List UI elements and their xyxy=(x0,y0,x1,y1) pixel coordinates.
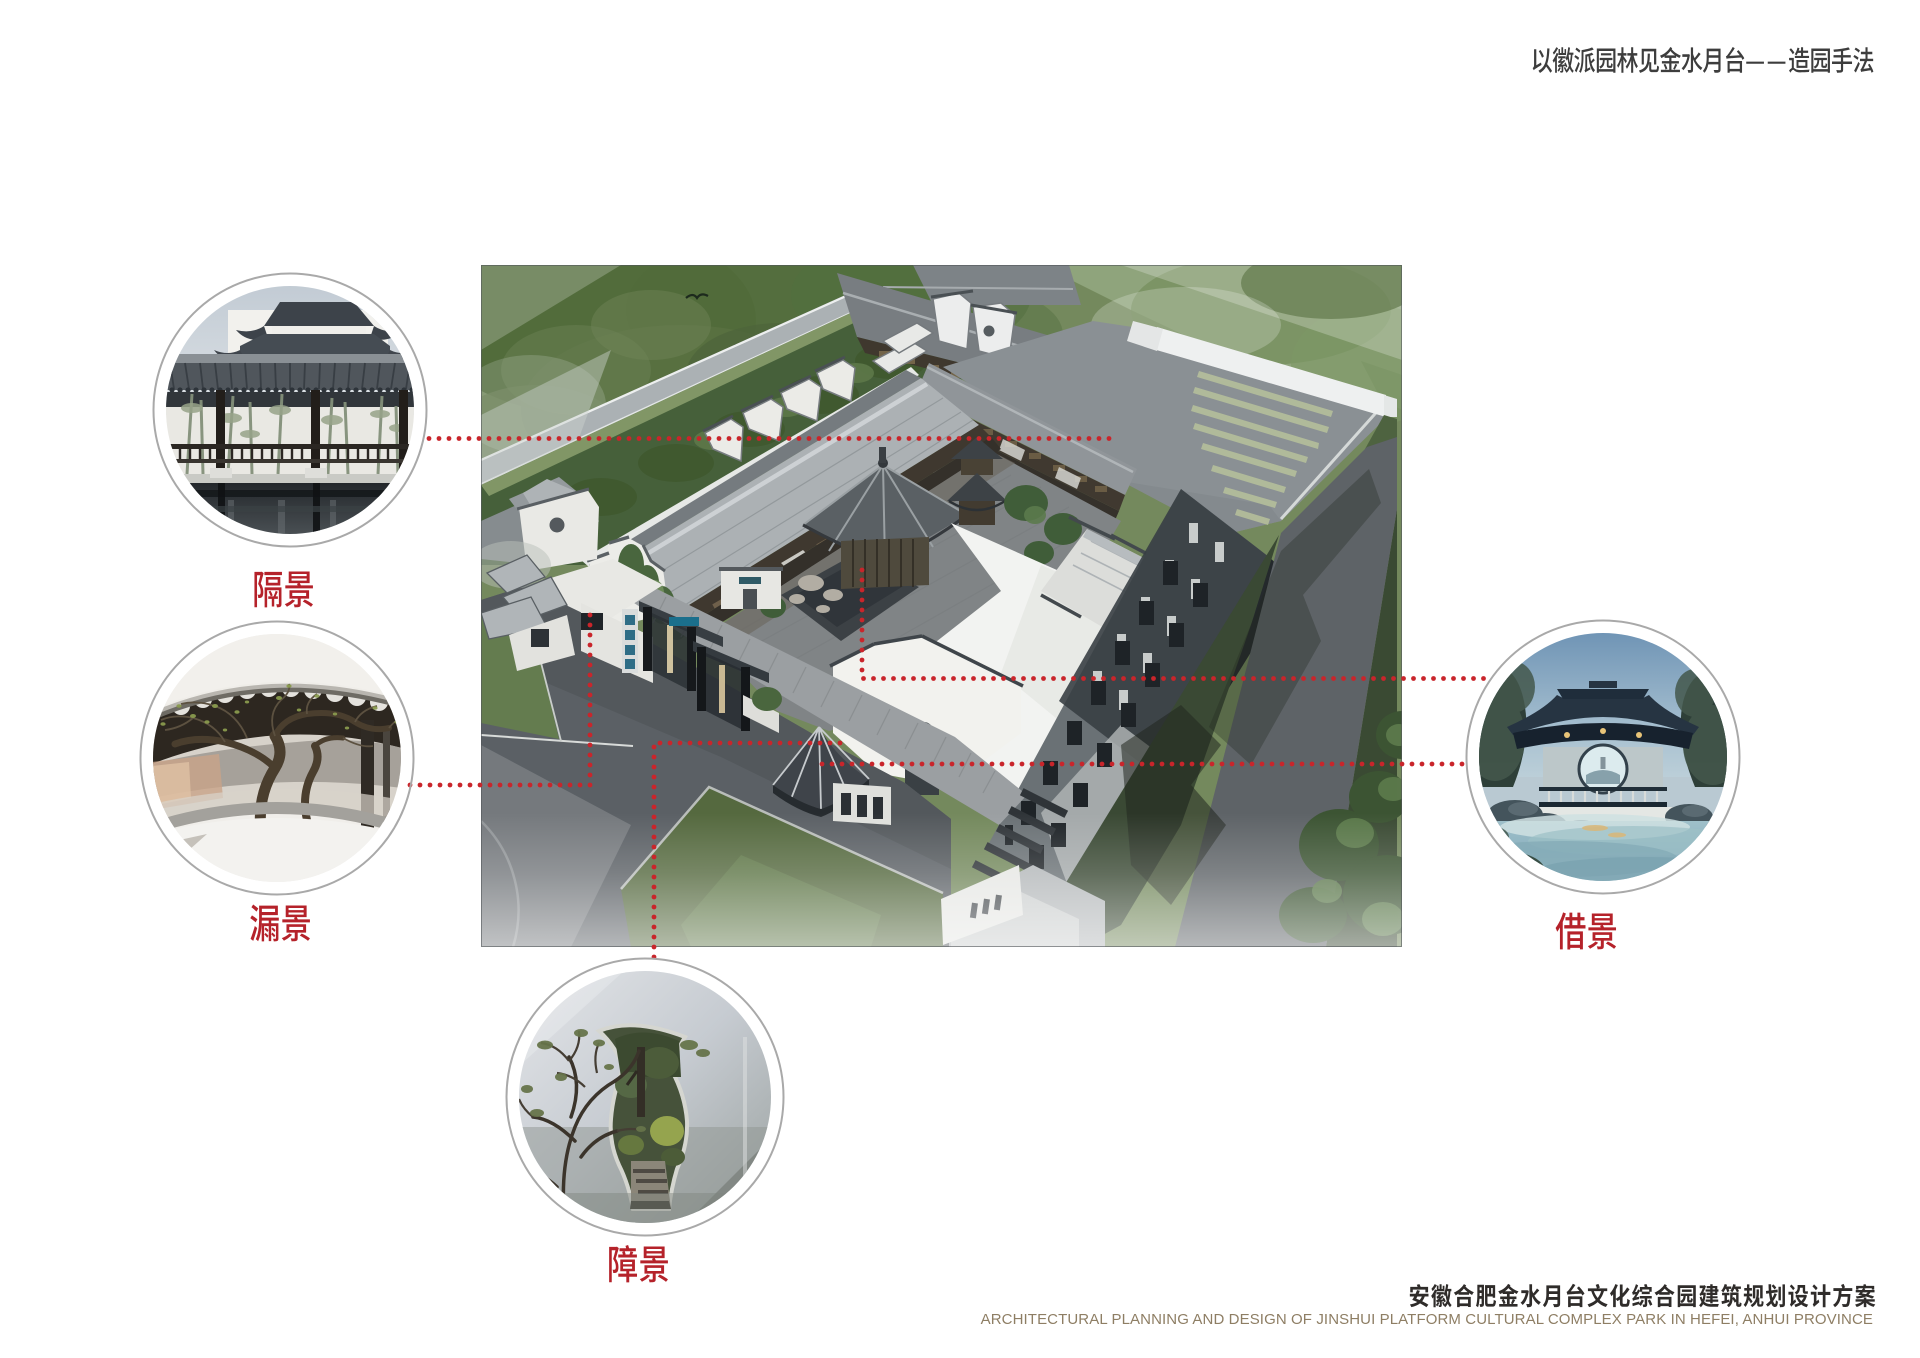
svg-text:ARCHITECTURAL PLANNING AND DES: ARCHITECTURAL PLANNING AND DESIGN OF JIN… xyxy=(981,1311,1873,1328)
